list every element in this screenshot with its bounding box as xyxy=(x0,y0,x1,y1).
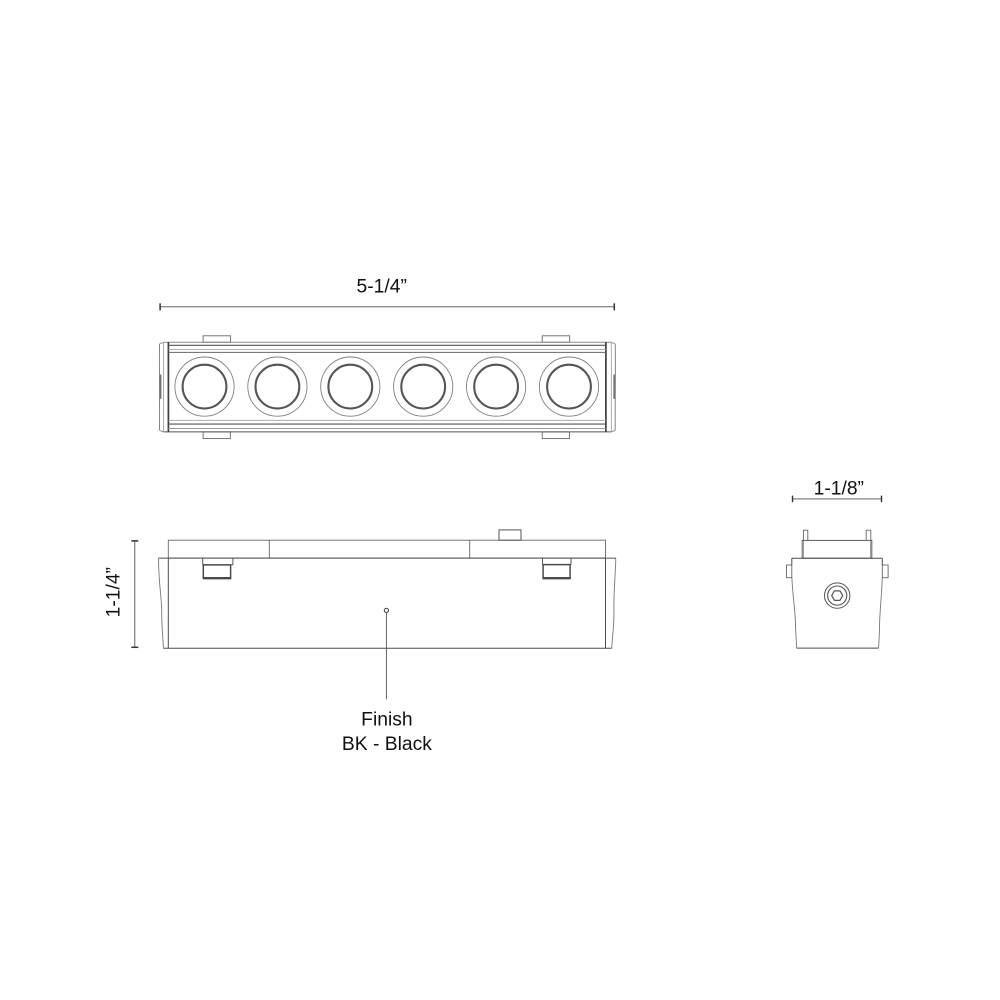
svg-text:Finish: Finish xyxy=(361,710,412,731)
svg-text:BK - Black: BK - Black xyxy=(342,734,432,755)
svg-text:1-1/8”: 1-1/8” xyxy=(814,478,864,499)
svg-text:1-1/4”: 1-1/4” xyxy=(103,567,124,617)
svg-text:5-1/4”: 5-1/4” xyxy=(357,277,407,298)
